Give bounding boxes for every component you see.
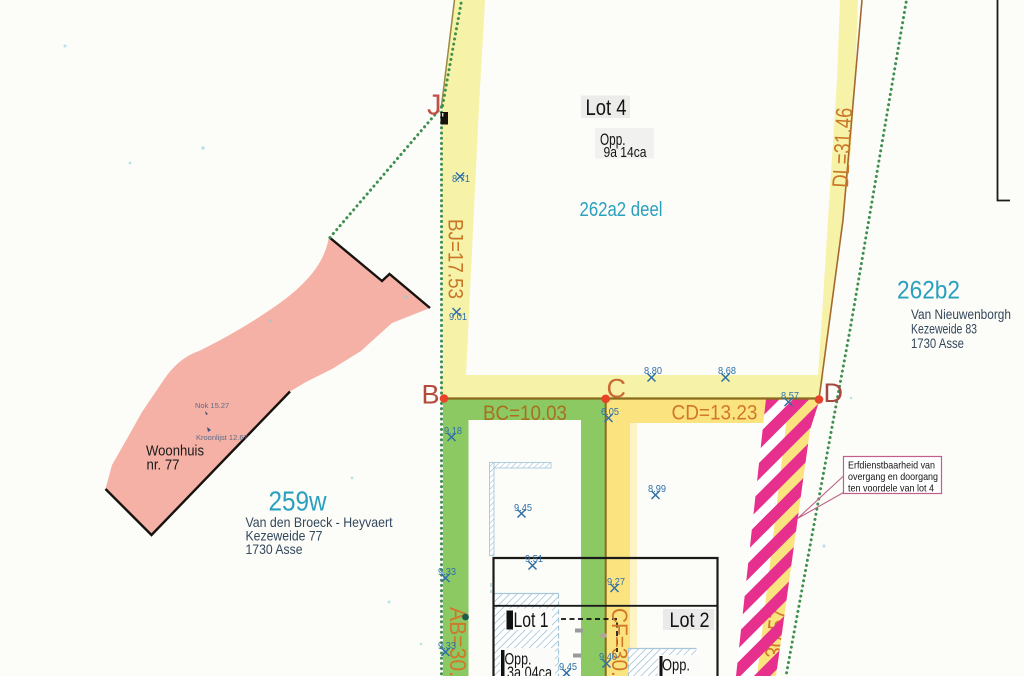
svg-text:Lot 2: Lot 2 — [670, 609, 710, 632]
svg-text:D: D — [824, 378, 844, 408]
svg-text:J: J — [427, 90, 442, 122]
svg-text:CD=13.23: CD=13.23 — [672, 402, 758, 425]
svg-text:1730 Asse: 1730 Asse — [911, 336, 964, 351]
svg-text:262a2 deel: 262a2 deel — [580, 199, 663, 221]
svg-text:3a 04ca: 3a 04ca — [507, 663, 552, 676]
svg-text:Erfdienstbaarheid van: Erfdienstbaarheid van — [848, 460, 935, 472]
svg-text:Lot 4: Lot 4 — [586, 95, 627, 120]
svg-text:overgang en doorgang: overgang en doorgang — [848, 471, 938, 483]
svg-text:9a 14ca: 9a 14ca — [604, 144, 648, 161]
svg-text:1730 Asse: 1730 Asse — [246, 541, 303, 557]
svg-text:Nok 15.27: Nok 15.27 — [195, 401, 229, 410]
svg-text:C: C — [607, 374, 627, 404]
svg-text:Kroonlijst 12.67: Kroonlijst 12.67 — [196, 433, 248, 442]
svg-text:Kezeweide 83: Kezeweide 83 — [911, 322, 977, 337]
svg-text:DL=31.46: DL=31.46 — [827, 107, 857, 188]
svg-text:BJ=17.53: BJ=17.53 — [444, 219, 467, 299]
svg-text:nr. 77: nr. 77 — [147, 458, 180, 474]
svg-text:CF=30.37: CF=30.37 — [607, 608, 632, 676]
svg-text:259w: 259w — [269, 486, 328, 517]
svg-text:BC=10.03: BC=10.03 — [483, 402, 567, 425]
svg-text:Opp.: Opp. — [662, 656, 690, 675]
svg-text:B: B — [421, 380, 439, 410]
svg-text:Lot 1: Lot 1 — [514, 609, 549, 632]
svg-text:Van Nieuwenborgh: Van Nieuwenborgh — [911, 307, 1011, 322]
svg-text:262b2: 262b2 — [897, 277, 960, 305]
svg-text:ten voordele van lot 4: ten voordele van lot 4 — [848, 483, 934, 495]
